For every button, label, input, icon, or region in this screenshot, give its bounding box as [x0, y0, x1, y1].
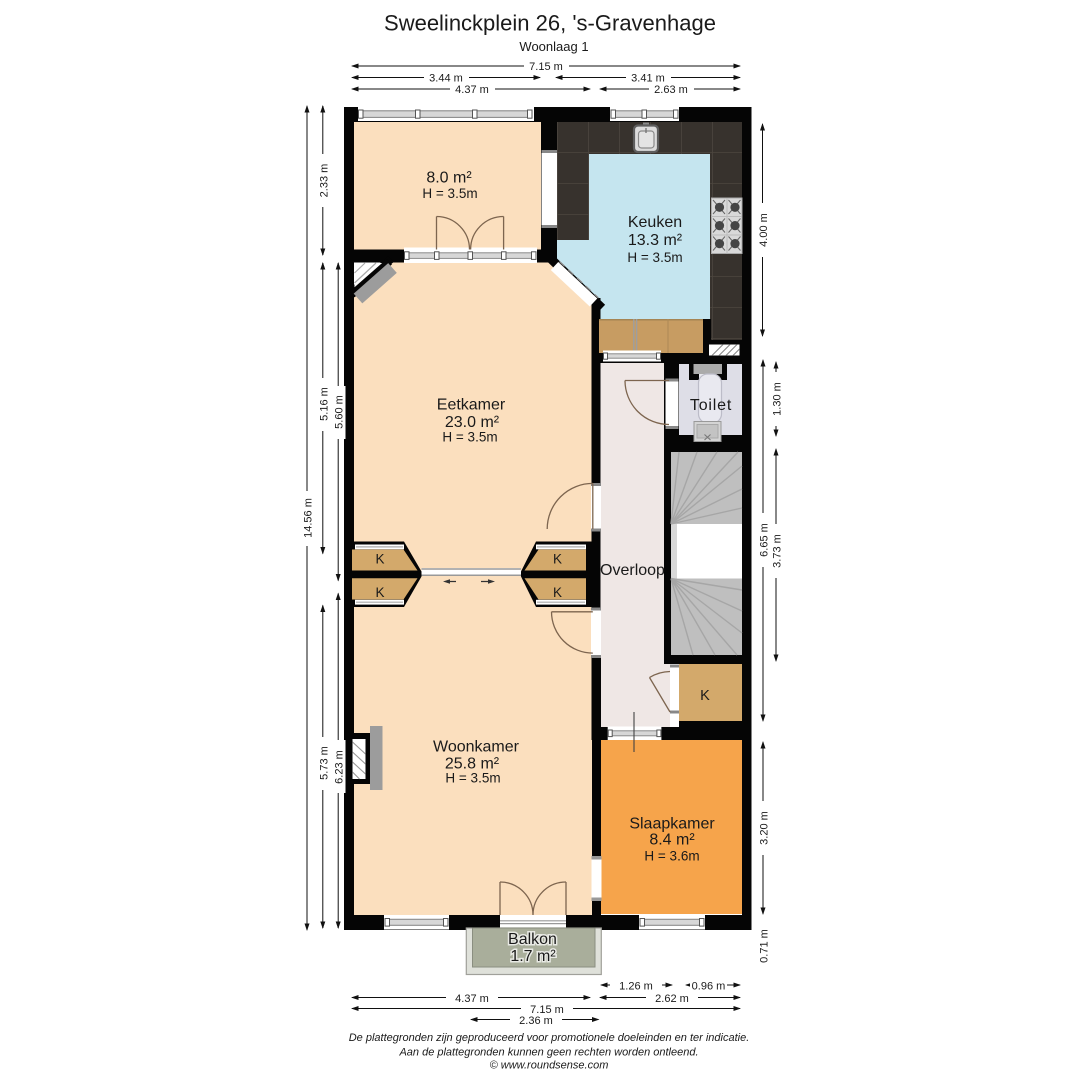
svg-text:K: K — [553, 552, 562, 567]
svg-text:4.37 m: 4.37 m — [455, 993, 489, 1005]
svg-text:8.0 m²: 8.0 m² — [426, 170, 472, 187]
svg-text:Keuken: Keuken — [628, 214, 682, 231]
svg-text:De plattegronden zijn geproduc: De plattegronden zijn geproduceerd voor … — [349, 1032, 750, 1044]
svg-text:0.71 m: 0.71 m — [759, 929, 771, 963]
svg-text:5.16 m: 5.16 m — [318, 387, 330, 421]
svg-text:K: K — [375, 585, 384, 600]
svg-text:3.44 m: 3.44 m — [429, 73, 463, 85]
svg-text:K: K — [553, 585, 562, 600]
svg-text:2.62 m: 2.62 m — [655, 993, 689, 1005]
svg-text:3.41 m: 3.41 m — [631, 73, 665, 85]
svg-text:1.7 m²: 1.7 m² — [510, 948, 556, 965]
svg-text:Toilet: Toilet — [690, 397, 732, 414]
svg-text:8.4 m²: 8.4 m² — [649, 832, 695, 849]
svg-text:5.73 m: 5.73 m — [318, 746, 330, 780]
svg-text:3.73 m: 3.73 m — [772, 534, 784, 568]
svg-text:Balkon: Balkon — [508, 931, 557, 948]
svg-text:4.37 m: 4.37 m — [455, 84, 489, 96]
svg-text:Woonkamer: Woonkamer — [433, 739, 520, 756]
svg-text:5.60 m: 5.60 m — [334, 395, 346, 429]
svg-text:Eetkamer: Eetkamer — [437, 397, 506, 414]
svg-text:Woonlaag 1: Woonlaag 1 — [519, 39, 588, 54]
svg-text:K: K — [700, 688, 710, 704]
svg-text:H = 3.5m: H = 3.5m — [422, 186, 477, 201]
svg-text:© www.roundsense.com: © www.roundsense.com — [490, 1060, 609, 1072]
svg-text:H = 3.5m: H = 3.5m — [627, 250, 682, 265]
svg-text:6.23 m: 6.23 m — [334, 750, 346, 784]
svg-text:H = 3.6m: H = 3.6m — [644, 849, 699, 864]
svg-text:13.3 m²: 13.3 m² — [628, 232, 683, 249]
svg-text:23.0 m²: 23.0 m² — [445, 414, 500, 431]
svg-text:4.00 m: 4.00 m — [758, 213, 770, 247]
svg-text:2.63 m: 2.63 m — [654, 84, 688, 96]
svg-text:Overloop: Overloop — [600, 562, 665, 579]
svg-text:2.36 m: 2.36 m — [519, 1015, 553, 1027]
svg-text:2.33 m: 2.33 m — [318, 164, 330, 198]
svg-text:14.56 m: 14.56 m — [303, 498, 315, 538]
svg-text:K: K — [375, 552, 384, 567]
svg-text:H = 3.5m: H = 3.5m — [445, 771, 500, 786]
svg-text:Slaapkamer: Slaapkamer — [629, 816, 715, 833]
svg-text:Sweelinckplein 26, 's-Gravenha: Sweelinckplein 26, 's-Gravenhage — [384, 11, 716, 36]
svg-text:Aan de plattegronden kunnen ge: Aan de plattegronden kunnen geen rechten… — [398, 1047, 698, 1059]
svg-text:7.15 m: 7.15 m — [529, 61, 563, 73]
svg-text:H = 3.5m: H = 3.5m — [442, 430, 497, 445]
svg-text:1.26 m: 1.26 m — [619, 981, 653, 993]
svg-text:0.96 m: 0.96 m — [692, 981, 726, 993]
svg-text:1.30 m: 1.30 m — [772, 382, 784, 416]
svg-text:3.20 m: 3.20 m — [759, 811, 771, 845]
svg-text:6.65 m: 6.65 m — [759, 523, 771, 557]
